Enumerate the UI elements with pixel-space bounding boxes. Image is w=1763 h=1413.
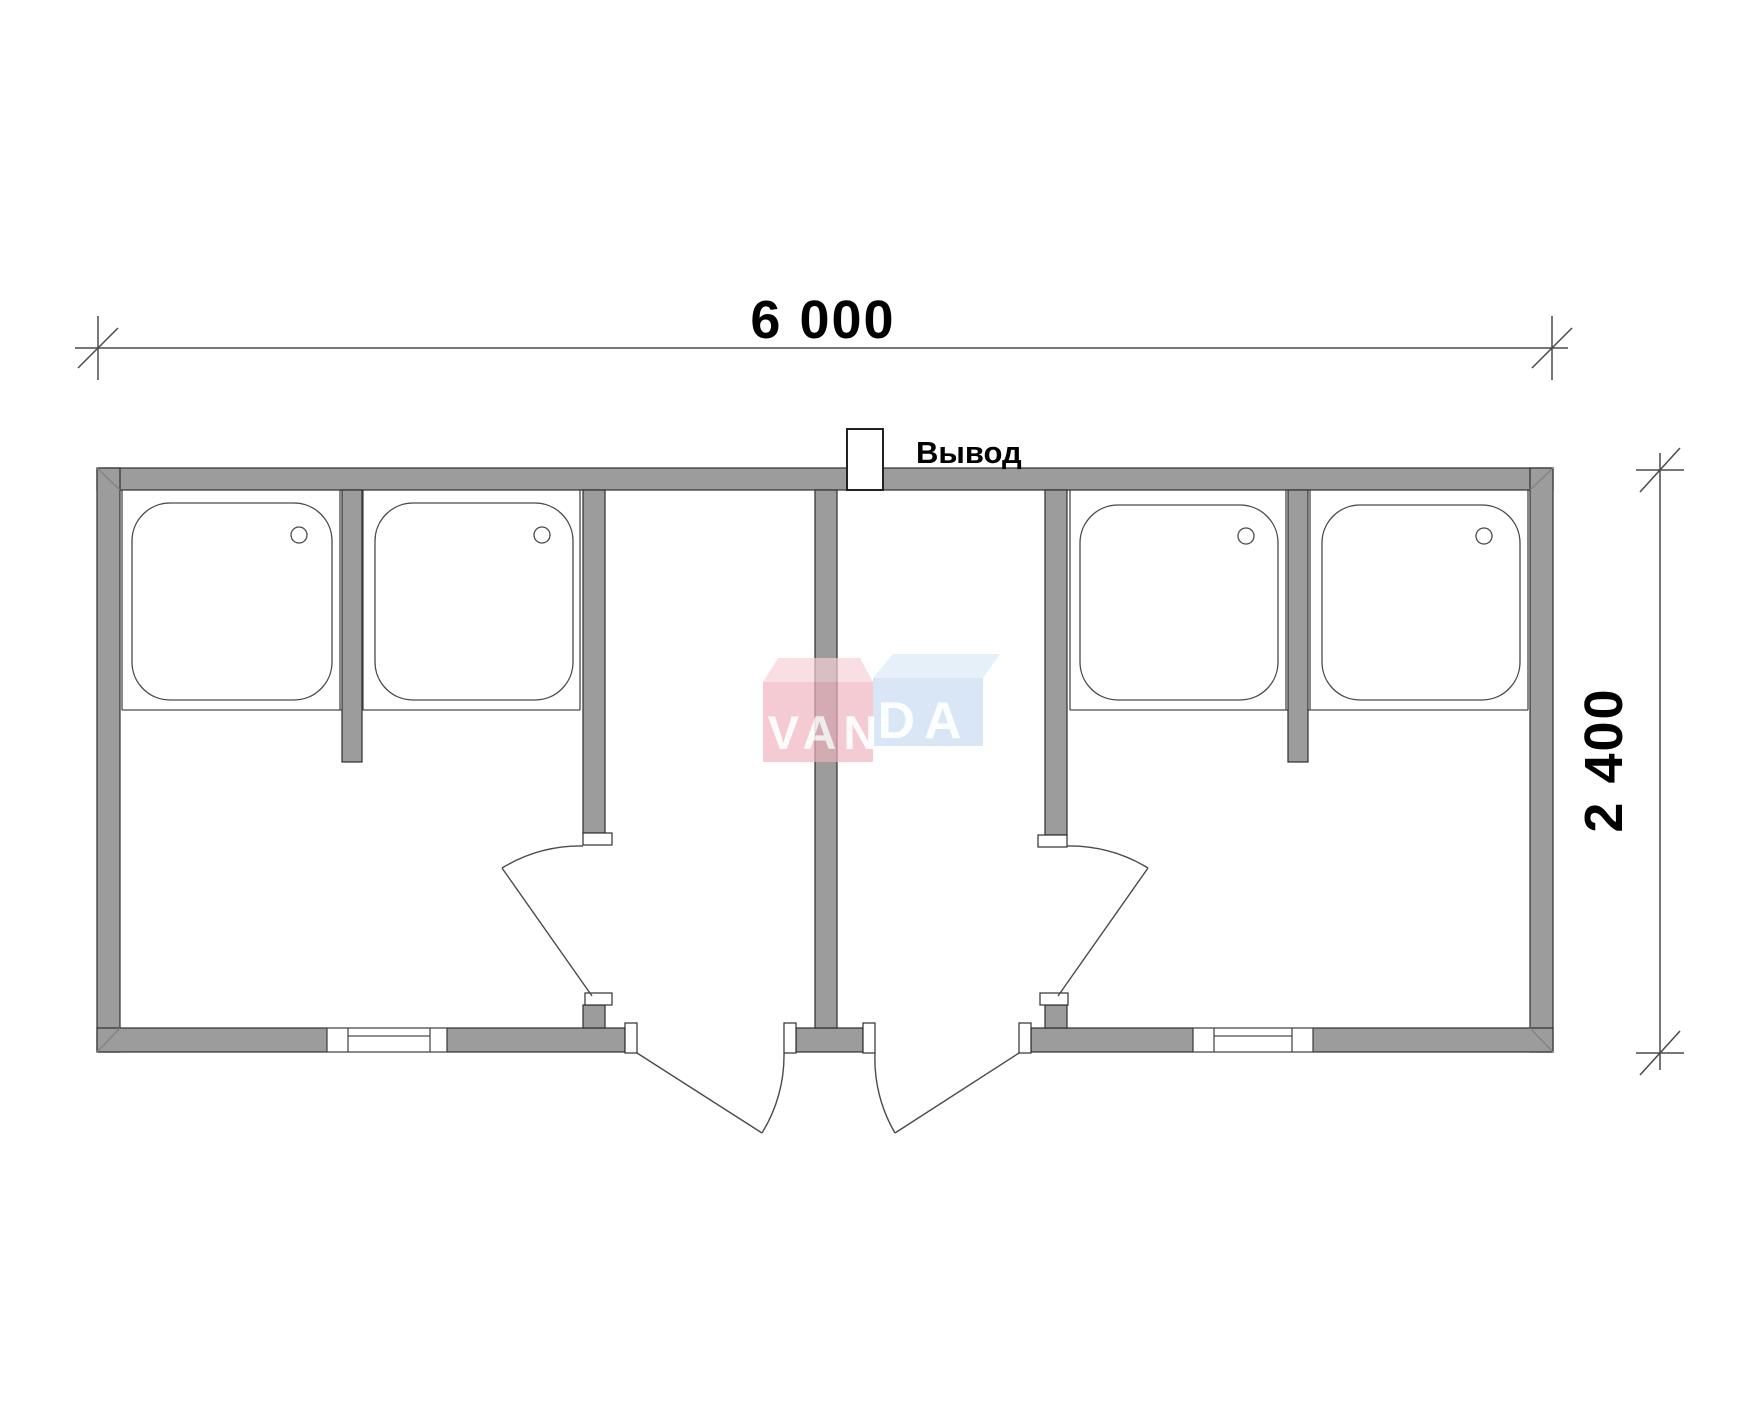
wall-shower-divider-right: [1288, 490, 1308, 762]
drain-icon: [1476, 528, 1492, 544]
drain-icon: [534, 527, 550, 543]
window-right: [1193, 1028, 1313, 1052]
door-swing-arc: [762, 1053, 784, 1133]
door-swing-arc: [875, 1053, 895, 1133]
logo-text-van: VAN: [768, 706, 885, 759]
outlet-box: [847, 429, 883, 490]
wall-bottom-segment: [1031, 1028, 1193, 1052]
door-jamb: [784, 1023, 796, 1053]
door-swing-arc: [502, 846, 583, 868]
wall-bottom-segment: [796, 1028, 863, 1052]
wall-top: [97, 468, 1553, 490]
shower-tray: [1080, 505, 1278, 700]
door-jamb: [585, 993, 612, 1005]
interior-door-right: [1058, 846, 1148, 996]
door-jamb: [1019, 1023, 1031, 1053]
window-frame: [327, 1028, 447, 1052]
drain-icon: [291, 527, 307, 543]
logo-pink-box-top: [763, 658, 873, 682]
door-jamb: [625, 1023, 637, 1053]
door-leaf: [1058, 868, 1148, 996]
door-jamb: [1038, 835, 1067, 847]
entrance-door-right: [875, 1053, 1019, 1133]
door-jamb: [863, 1023, 875, 1053]
wall-right: [1530, 468, 1553, 1052]
shower-tray: [375, 503, 573, 700]
wall-right-room-partition-stub: [1045, 1005, 1067, 1028]
door-jamb: [583, 833, 612, 845]
logo-blue-box-top: [873, 654, 1000, 678]
door-leaf: [502, 868, 592, 996]
wall-left-room-partition: [583, 490, 605, 833]
window-left: [327, 1028, 447, 1052]
drain-icon: [1238, 528, 1254, 544]
wall-right-room-partition: [1045, 490, 1067, 835]
wall-left: [97, 468, 120, 1052]
logo-text-da: DA: [877, 692, 970, 750]
outlet-label: Вывод: [916, 435, 1022, 470]
door-swing-arc: [1067, 846, 1148, 868]
door-jamb: [1040, 993, 1068, 1005]
interior-door-left: [502, 846, 592, 996]
wall-left-room-partition-stub: [583, 1005, 605, 1028]
wall-shower-divider-left: [342, 490, 362, 762]
wall-bottom-segment: [97, 1028, 327, 1052]
window-frame: [1193, 1028, 1313, 1052]
dimension-width-label: 6 000: [750, 290, 895, 350]
entrance-door-left: [637, 1053, 784, 1133]
dimension-height-label: 2 400: [1574, 687, 1634, 832]
shower-tray: [132, 503, 332, 700]
floor-plan: Вывод: [0, 0, 1763, 1413]
vanda-logo: VAN DA: [763, 654, 1000, 762]
door-leaf: [637, 1053, 762, 1133]
wall-bottom-segment: [447, 1028, 625, 1052]
shower-tray: [1322, 505, 1520, 700]
door-leaf: [895, 1053, 1019, 1133]
wall-bottom-segment: [1313, 1028, 1553, 1052]
